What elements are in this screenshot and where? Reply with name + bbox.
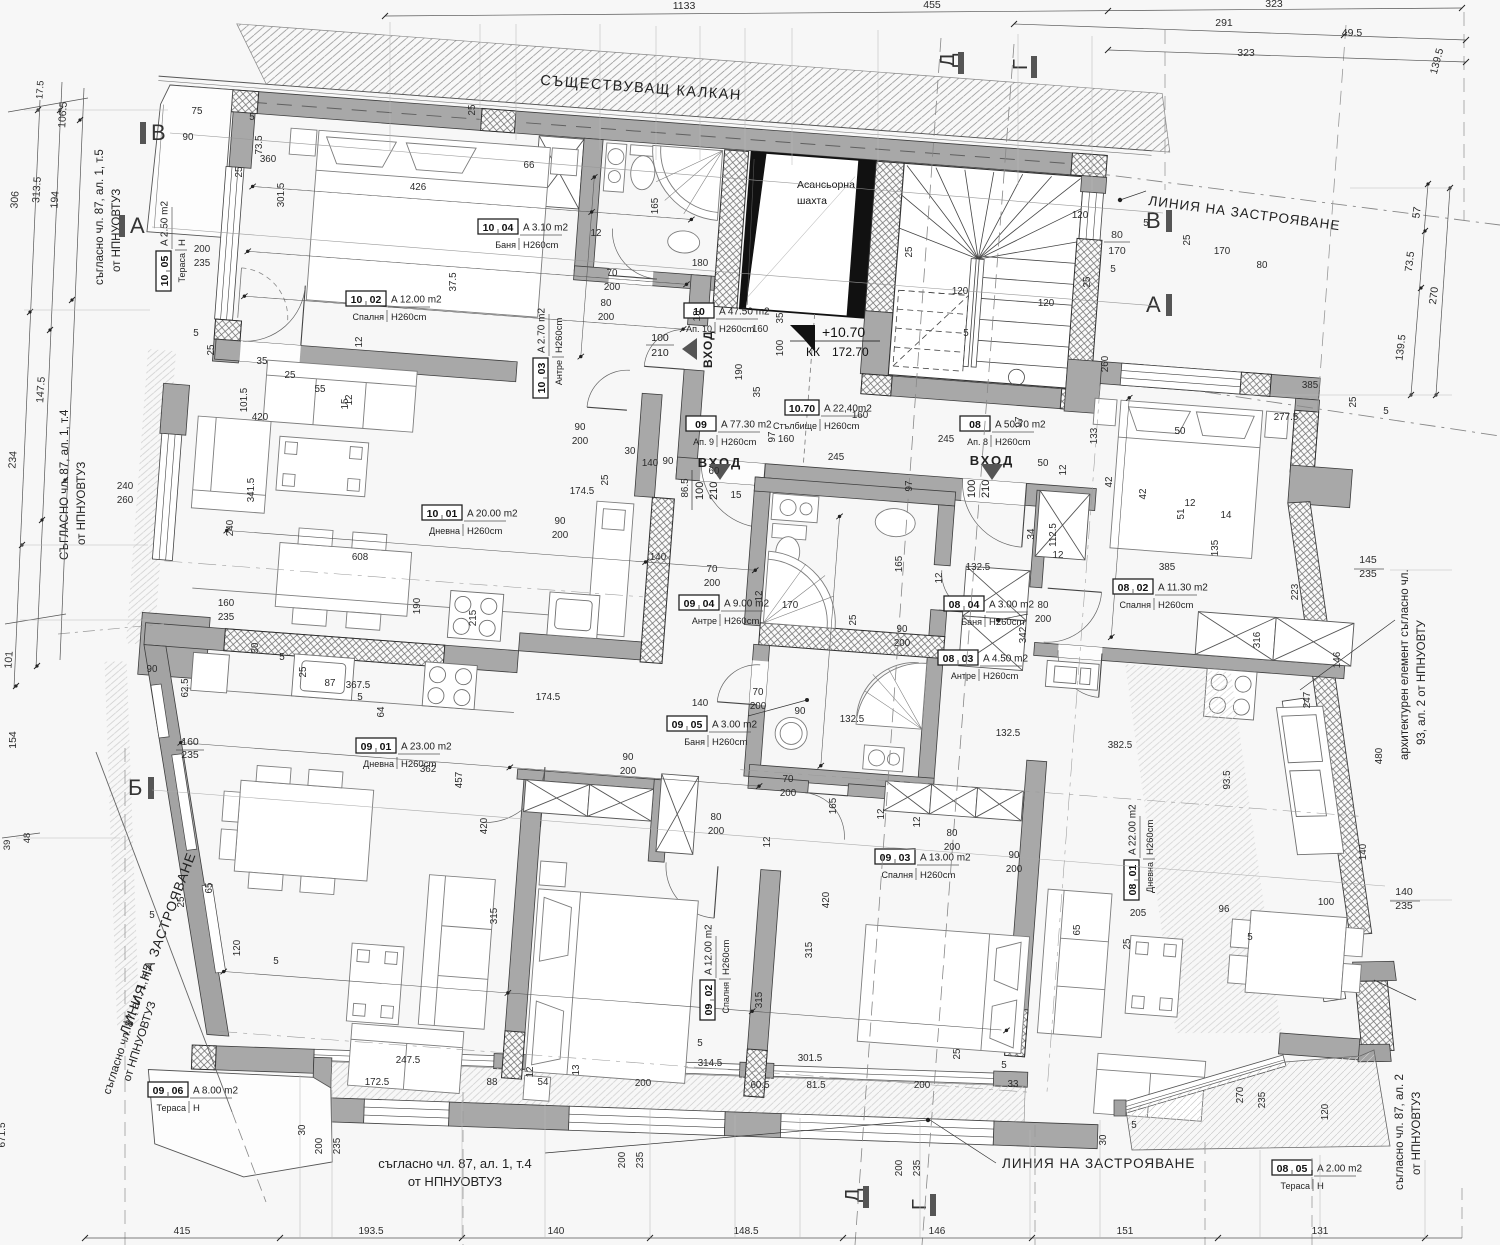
svg-text:12: 12 — [525, 1067, 536, 1078]
svg-text:62.5: 62.5 — [180, 678, 191, 698]
svg-text:385: 385 — [1159, 562, 1176, 573]
svg-text:80: 80 — [601, 298, 612, 309]
svg-text:245: 245 — [828, 452, 845, 463]
svg-text:66: 66 — [524, 160, 535, 171]
svg-text:50: 50 — [1175, 426, 1186, 437]
svg-text:Б: Б — [128, 775, 142, 800]
svg-text:54: 54 — [538, 1077, 549, 1088]
svg-text:60: 60 — [709, 466, 720, 477]
svg-text:70: 70 — [783, 774, 794, 785]
svg-text:316: 316 — [1252, 631, 1263, 648]
svg-text:25: 25 — [600, 474, 611, 485]
svg-text:08: 08 — [969, 419, 981, 431]
svg-text:10: 10 — [536, 382, 548, 394]
svg-text:73.5: 73.5 — [1403, 251, 1417, 273]
svg-text:50: 50 — [1038, 458, 1049, 469]
svg-text:5: 5 — [1110, 264, 1116, 275]
svg-text:H260cm: H260cm — [554, 318, 565, 353]
svg-text:05: 05 — [691, 719, 703, 731]
svg-text:5: 5 — [1383, 406, 1389, 417]
svg-text:Баня: Баня — [495, 240, 516, 250]
svg-text:270: 270 — [1235, 1086, 1246, 1103]
svg-text:01: 01 — [380, 741, 392, 753]
svg-text:05: 05 — [1296, 1163, 1308, 1175]
svg-text:30: 30 — [250, 642, 261, 653]
svg-text:A 3.00 m2: A 3.00 m2 — [712, 720, 757, 731]
svg-text:205: 205 — [1130, 908, 1147, 919]
svg-text:360: 360 — [260, 154, 277, 165]
svg-text:93, ал. 2 от НПНУОВТУ: 93, ал. 2 от НПНУОВТУ — [1416, 619, 1428, 745]
svg-text:235: 235 — [332, 1137, 343, 1154]
svg-text:90: 90 — [183, 132, 194, 143]
svg-text:A 47.50 m2: A 47.50 m2 — [719, 307, 770, 318]
svg-text:200: 200 — [552, 530, 569, 541]
svg-text:132.5: 132.5 — [996, 728, 1021, 739]
svg-text:25: 25 — [467, 104, 478, 115]
svg-text:65: 65 — [204, 882, 215, 893]
svg-text:A 12.00 m2: A 12.00 m2 — [704, 924, 715, 975]
svg-text:160: 160 — [218, 598, 235, 609]
svg-text:5: 5 — [697, 1038, 703, 1049]
svg-text:97: 97 — [1014, 417, 1025, 428]
svg-text:426: 426 — [410, 182, 427, 193]
svg-text:Д: Д — [842, 1188, 864, 1202]
svg-text:100: 100 — [694, 482, 706, 500]
svg-text:съгласно чл. 87, ал. 1, т.4: съгласно чл. 87, ал. 1, т.4 — [378, 1156, 532, 1171]
svg-text:42: 42 — [1104, 477, 1115, 488]
svg-text:671.5: 671.5 — [0, 1122, 8, 1147]
svg-text:101: 101 — [2, 650, 15, 668]
svg-text:70: 70 — [607, 268, 618, 279]
svg-text:5: 5 — [1131, 1120, 1137, 1131]
svg-text:37.5: 37.5 — [448, 272, 459, 292]
svg-text:от НПНУОВТУЗ: от НПНУОВТУЗ — [1411, 1092, 1423, 1175]
svg-text:42: 42 — [1138, 489, 1149, 500]
svg-text:30: 30 — [1098, 1134, 1109, 1145]
svg-text:Спалня: Спалня — [882, 870, 914, 880]
svg-text:Антре: Антре — [692, 616, 717, 626]
svg-text:25: 25 — [234, 166, 245, 177]
svg-text:H260cm: H260cm — [1145, 820, 1156, 855]
svg-text:02: 02 — [703, 985, 715, 997]
svg-text:146: 146 — [1332, 651, 1343, 668]
svg-text:90: 90 — [663, 456, 674, 467]
svg-text:200: 200 — [894, 638, 911, 649]
svg-text:10: 10 — [483, 222, 495, 234]
svg-text:382.5: 382.5 — [1108, 740, 1133, 751]
svg-text:342: 342 — [1018, 627, 1029, 643]
svg-text:75: 75 — [192, 106, 203, 117]
svg-text:234: 234 — [6, 450, 19, 468]
svg-text:457: 457 — [454, 772, 465, 788]
svg-text:154: 154 — [7, 731, 19, 749]
svg-text:245: 245 — [938, 434, 955, 445]
svg-text:Асансьорна: Асансьорна — [797, 179, 855, 191]
svg-text:49.5: 49.5 — [1342, 27, 1363, 39]
svg-text:160: 160 — [181, 736, 199, 748]
svg-text:301.5: 301.5 — [276, 182, 287, 207]
svg-text:H260cm: H260cm — [824, 421, 859, 432]
svg-text:200: 200 — [617, 1151, 628, 1168]
svg-text:90: 90 — [575, 422, 586, 433]
svg-text:223: 223 — [1290, 583, 1301, 600]
svg-text:170: 170 — [782, 600, 799, 611]
svg-text:5: 5 — [1001, 1060, 1007, 1071]
svg-text:101.5: 101.5 — [239, 387, 250, 412]
svg-text:Ап. 9: Ап. 9 — [693, 437, 714, 447]
svg-text:А: А — [1146, 292, 1161, 317]
svg-text:25: 25 — [1182, 234, 1193, 245]
svg-text:100: 100 — [1318, 897, 1335, 908]
svg-text:ЛИНИЯ НА ЗАСТРОЯВАНЕ: ЛИНИЯ НА ЗАСТРОЯВАНЕ — [1002, 1156, 1195, 1171]
svg-text:165: 165 — [828, 797, 839, 814]
svg-text:12: 12 — [1185, 498, 1196, 509]
svg-text:235: 235 — [194, 258, 211, 269]
svg-text:33: 33 — [1008, 1079, 1019, 1090]
svg-text:323: 323 — [1237, 47, 1255, 59]
svg-text:200: 200 — [780, 788, 797, 799]
svg-text:140: 140 — [548, 1226, 565, 1237]
svg-text:146: 146 — [929, 1226, 946, 1237]
svg-text:5: 5 — [273, 956, 279, 967]
svg-text:Баня: Баня — [961, 617, 982, 627]
svg-text:174.5: 174.5 — [570, 486, 595, 497]
svg-text:5: 5 — [963, 328, 969, 339]
svg-text:12: 12 — [354, 337, 365, 348]
svg-text:200: 200 — [604, 282, 621, 293]
svg-text:120: 120 — [232, 939, 243, 956]
svg-text:H260cm: H260cm — [1158, 600, 1193, 611]
svg-text:25: 25 — [1348, 396, 1359, 407]
svg-text:A 2.50 m2: A 2.50 m2 — [160, 201, 171, 246]
svg-text:12: 12 — [1058, 465, 1069, 476]
svg-text:A 8.00 m2: A 8.00 m2 — [193, 1086, 238, 1097]
svg-text:323: 323 — [1265, 0, 1283, 10]
svg-text:съгласно чл. 87, ал. 2: съгласно чл. 87, ал. 2 — [1394, 1074, 1406, 1190]
svg-text:H260cm: H260cm — [983, 671, 1018, 682]
svg-text:Тераса: Тераса — [156, 1103, 186, 1113]
svg-text:87: 87 — [325, 678, 336, 689]
svg-text:Дневна: Дневна — [1145, 862, 1155, 893]
svg-text:93.5: 93.5 — [1222, 770, 1233, 790]
svg-text:Д: Д — [937, 53, 959, 67]
svg-text:Спалня: Спалня — [1120, 600, 1152, 610]
svg-text:5: 5 — [357, 692, 363, 703]
svg-text:455: 455 — [923, 0, 941, 11]
svg-text:172.5: 172.5 — [365, 1077, 390, 1088]
svg-text:08: 08 — [949, 599, 961, 611]
svg-text:200: 200 — [194, 244, 211, 255]
svg-text:09: 09 — [672, 719, 684, 731]
svg-text:200: 200 — [314, 1137, 325, 1154]
svg-text:10: 10 — [427, 508, 439, 520]
svg-text:100: 100 — [966, 480, 978, 498]
svg-text:97: 97 — [767, 432, 778, 443]
svg-text:81.5: 81.5 — [806, 1080, 826, 1091]
svg-text:235: 235 — [1359, 568, 1377, 580]
svg-text:145: 145 — [1359, 554, 1377, 566]
svg-text:200: 200 — [572, 436, 589, 447]
svg-text:215: 215 — [468, 609, 479, 626]
svg-text:51: 51 — [1176, 509, 1187, 520]
svg-text:73.5: 73.5 — [254, 135, 265, 155]
svg-text:120: 120 — [1320, 1103, 1331, 1120]
svg-text:35: 35 — [752, 386, 763, 397]
svg-text:13: 13 — [571, 1064, 582, 1075]
svg-text:03: 03 — [899, 852, 911, 864]
svg-text:25: 25 — [206, 344, 217, 355]
svg-text:08: 08 — [1277, 1163, 1289, 1175]
svg-text:12: 12 — [762, 837, 773, 848]
svg-text:A 22.00 m2: A 22.00 m2 — [1128, 804, 1139, 855]
svg-text:55: 55 — [315, 384, 326, 395]
svg-text:200: 200 — [620, 766, 637, 777]
svg-text:A 77.30 m2: A 77.30 m2 — [721, 420, 772, 431]
svg-text:210: 210 — [708, 482, 720, 500]
svg-text:151: 151 — [1117, 1226, 1134, 1237]
svg-text:15: 15 — [731, 490, 742, 501]
svg-text:90: 90 — [555, 516, 566, 527]
svg-text:160: 160 — [752, 324, 769, 335]
svg-text:90: 90 — [795, 706, 806, 717]
svg-text:H: H — [1317, 1181, 1324, 1192]
svg-text:A 23.00 m2: A 23.00 m2 — [401, 742, 452, 753]
svg-text:15: 15 — [340, 398, 351, 409]
svg-text:148.5: 148.5 — [733, 1226, 758, 1237]
svg-text:200: 200 — [598, 312, 615, 323]
svg-text:260: 260 — [117, 495, 134, 506]
svg-text:Ап. 8: Ап. 8 — [967, 437, 988, 447]
svg-text:314.5: 314.5 — [698, 1058, 723, 1069]
svg-text:90: 90 — [147, 664, 158, 675]
svg-text:174.5: 174.5 — [536, 692, 561, 703]
svg-text:70: 70 — [707, 564, 718, 575]
svg-text:90: 90 — [623, 752, 634, 763]
svg-text:1133: 1133 — [673, 0, 696, 12]
svg-text:270: 270 — [1427, 286, 1441, 305]
svg-text:25: 25 — [298, 666, 309, 677]
svg-text:12: 12 — [591, 228, 602, 239]
svg-text:H260cm: H260cm — [721, 940, 732, 975]
svg-text:12: 12 — [754, 591, 765, 602]
svg-text:135: 135 — [1210, 539, 1221, 556]
svg-text:08: 08 — [1127, 884, 1139, 896]
svg-text:H260cm: H260cm — [719, 324, 754, 335]
svg-text:от НПНУОВТУЗ: от НПНУОВТУЗ — [76, 462, 88, 545]
svg-text:608: 608 — [352, 552, 369, 563]
svg-text:80: 80 — [1111, 229, 1123, 241]
svg-text:313.5: 313.5 — [30, 176, 44, 203]
svg-text:415: 415 — [174, 1226, 191, 1237]
svg-text:Антре: Антре — [554, 360, 564, 385]
svg-text:30: 30 — [625, 446, 636, 457]
svg-text:180: 180 — [692, 258, 709, 269]
svg-text:140: 140 — [692, 698, 709, 709]
svg-text:65: 65 — [1072, 924, 1083, 935]
svg-text:13: 13 — [692, 310, 703, 321]
svg-text:362: 362 — [420, 764, 436, 775]
svg-text:A 2.00 m2: A 2.00 m2 — [1317, 1164, 1362, 1175]
svg-text:+10.70: +10.70 — [822, 324, 865, 340]
svg-text:30: 30 — [297, 1124, 308, 1135]
svg-text:04: 04 — [703, 598, 715, 610]
svg-text:5: 5 — [1247, 932, 1253, 943]
svg-text:09: 09 — [880, 852, 892, 864]
svg-text:34: 34 — [1026, 528, 1037, 539]
svg-text:140: 140 — [650, 552, 667, 563]
svg-text:25: 25 — [848, 614, 859, 625]
svg-text:H260cm: H260cm — [712, 737, 747, 748]
svg-text:200: 200 — [894, 1159, 905, 1176]
svg-text:H260cm: H260cm — [523, 240, 558, 251]
svg-text:Дневна: Дневна — [429, 526, 460, 536]
svg-text:172.70: 172.70 — [832, 345, 869, 359]
svg-text:367.5: 367.5 — [346, 680, 371, 691]
svg-text:133: 133 — [1089, 427, 1100, 444]
svg-text:260: 260 — [1100, 355, 1111, 372]
svg-text:02: 02 — [1137, 582, 1149, 594]
svg-text:80: 80 — [947, 828, 958, 839]
svg-text:H: H — [177, 239, 188, 246]
svg-text:120: 120 — [952, 286, 969, 297]
svg-text:190: 190 — [412, 597, 423, 614]
svg-text:235: 235 — [218, 612, 235, 623]
svg-text:25: 25 — [285, 370, 296, 381]
svg-text:64: 64 — [376, 706, 387, 717]
svg-text:132.5: 132.5 — [840, 714, 865, 725]
svg-text:H260cm: H260cm — [721, 437, 756, 448]
svg-text:10.70: 10.70 — [789, 403, 815, 415]
svg-text:Г: Г — [1010, 59, 1032, 70]
svg-text:385: 385 — [1302, 380, 1319, 391]
svg-text:147.5: 147.5 — [34, 376, 48, 403]
svg-text:240: 240 — [117, 481, 134, 492]
svg-text:04: 04 — [968, 599, 980, 611]
svg-text:80: 80 — [1257, 260, 1268, 271]
svg-text:132.5: 132.5 — [966, 562, 991, 573]
svg-text:120: 120 — [1072, 210, 1089, 221]
svg-text:247.5: 247.5 — [396, 1055, 421, 1066]
svg-text:10: 10 — [351, 294, 363, 306]
svg-text:05: 05 — [159, 256, 171, 268]
svg-text:09: 09 — [361, 741, 373, 753]
svg-text:A 4.50 m2: A 4.50 m2 — [983, 654, 1028, 665]
svg-text:200: 200 — [708, 826, 725, 837]
svg-text:86.5: 86.5 — [680, 478, 691, 498]
svg-text:140: 140 — [1395, 886, 1413, 898]
svg-text:5: 5 — [249, 112, 255, 123]
svg-text:140: 140 — [1358, 843, 1369, 860]
svg-text:09: 09 — [153, 1085, 165, 1097]
svg-text:200: 200 — [914, 1080, 931, 1091]
svg-text:190: 190 — [734, 363, 745, 380]
svg-text:200: 200 — [1035, 614, 1052, 625]
svg-text:420: 420 — [479, 817, 490, 834]
svg-text:В: В — [151, 120, 166, 145]
svg-text:09: 09 — [695, 419, 707, 431]
svg-text:архитектурен елемент съгласно: архитектурен елемент съгласно чл. — [1399, 569, 1411, 760]
svg-text:Дневна: Дневна — [363, 759, 394, 769]
svg-text:Баня: Баня — [684, 737, 705, 747]
svg-text:Антре: Антре — [951, 671, 976, 681]
svg-text:170: 170 — [1108, 245, 1126, 257]
svg-text:25: 25 — [1082, 276, 1093, 287]
svg-text:235: 235 — [1257, 1091, 1268, 1108]
svg-text:03: 03 — [536, 363, 548, 375]
svg-text:Тераса: Тераса — [177, 253, 187, 283]
svg-text:420: 420 — [821, 891, 832, 908]
svg-text:H260cm: H260cm — [995, 437, 1030, 448]
svg-text:08: 08 — [943, 653, 955, 665]
svg-text:70: 70 — [753, 687, 764, 698]
svg-text:235: 235 — [912, 1159, 923, 1176]
svg-text:5: 5 — [1143, 218, 1149, 229]
svg-text:60.5: 60.5 — [750, 1080, 770, 1091]
svg-text:100: 100 — [775, 339, 786, 356]
svg-text:200: 200 — [635, 1078, 652, 1089]
svg-text:200: 200 — [750, 701, 767, 712]
svg-text:140: 140 — [642, 458, 659, 469]
svg-text:165: 165 — [894, 555, 905, 572]
svg-text:210: 210 — [980, 480, 992, 498]
svg-text:5: 5 — [279, 652, 285, 663]
svg-text:235: 235 — [635, 1151, 646, 1168]
svg-text:Стълбище: Стълбище — [773, 421, 817, 431]
svg-text:шахта: шахта — [797, 195, 827, 207]
svg-text:193.5: 193.5 — [358, 1226, 383, 1237]
svg-text:88: 88 — [487, 1077, 498, 1088]
svg-text:120: 120 — [1038, 298, 1055, 309]
svg-text:97: 97 — [904, 481, 915, 492]
svg-text:100: 100 — [651, 332, 669, 344]
svg-text:235: 235 — [181, 749, 199, 761]
svg-text:165: 165 — [650, 197, 661, 214]
svg-text:301.5: 301.5 — [798, 1053, 823, 1064]
svg-text:200: 200 — [704, 578, 721, 589]
svg-text:200: 200 — [944, 842, 961, 853]
svg-text:17.5: 17.5 — [34, 80, 46, 99]
svg-text:06: 06 — [172, 1085, 184, 1097]
svg-text:5: 5 — [149, 910, 155, 921]
svg-text:39: 39 — [2, 840, 13, 851]
svg-text:5: 5 — [193, 328, 199, 339]
svg-text:160: 160 — [778, 434, 795, 445]
svg-text:H260cm: H260cm — [391, 312, 426, 323]
svg-text:315: 315 — [804, 941, 815, 958]
svg-text:08: 08 — [1118, 582, 1130, 594]
svg-text:09: 09 — [703, 1004, 715, 1016]
svg-text:80: 80 — [711, 812, 722, 823]
svg-text:112.5: 112.5 — [1048, 523, 1059, 547]
svg-text:25: 25 — [952, 1048, 963, 1059]
svg-text:A 3.10 m2: A 3.10 m2 — [523, 223, 568, 234]
svg-text:14: 14 — [1221, 510, 1232, 521]
svg-text:H260cm: H260cm — [989, 617, 1024, 628]
svg-text:H260cm: H260cm — [467, 526, 502, 537]
svg-text:420: 420 — [252, 412, 269, 423]
svg-text:315: 315 — [489, 907, 500, 924]
svg-text:КК: КК — [806, 345, 820, 359]
svg-text:35: 35 — [775, 312, 786, 323]
svg-text:35: 35 — [257, 356, 268, 367]
svg-text:02: 02 — [370, 294, 382, 306]
svg-text:A 13.00 m2: A 13.00 m2 — [920, 853, 971, 864]
svg-text:106.5: 106.5 — [56, 101, 70, 128]
svg-text:съгласно чл. 87, ал. 1, т.5: съгласно чл. 87, ал. 1, т.5 — [94, 149, 106, 285]
svg-text:315: 315 — [754, 991, 765, 1008]
svg-text:194: 194 — [48, 190, 61, 208]
svg-text:А: А — [130, 213, 145, 238]
